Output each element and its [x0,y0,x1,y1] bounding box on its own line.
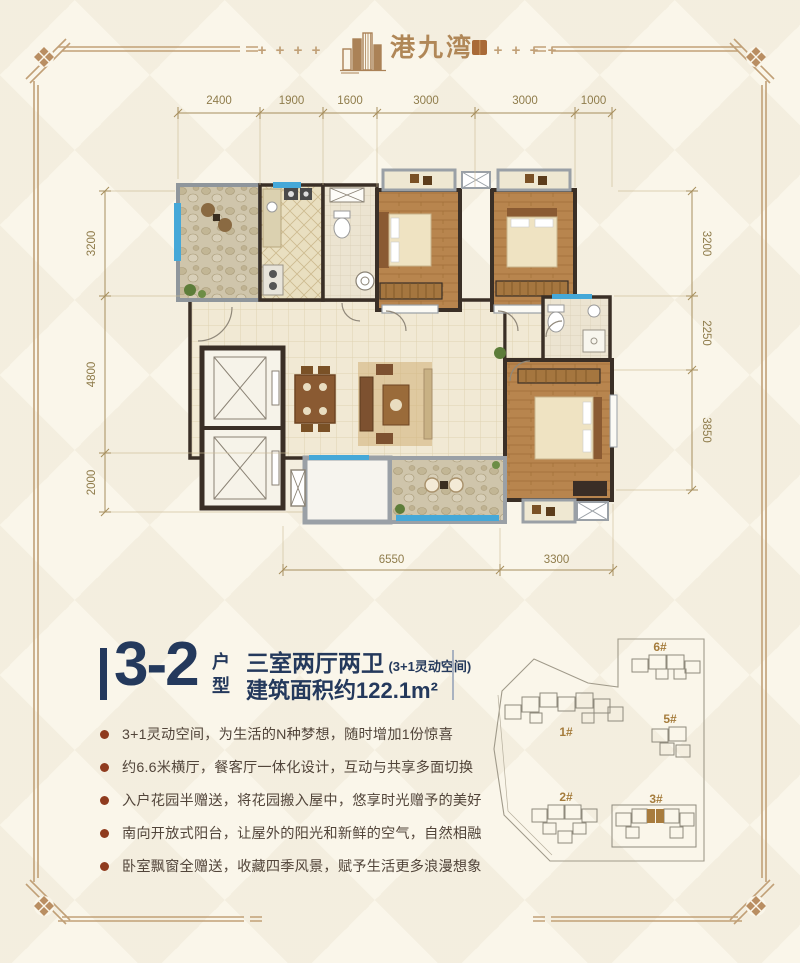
open-balcony [390,458,505,522]
site-building-6 [632,655,700,679]
site-building-2 [532,805,597,843]
sofa [360,377,373,431]
dim-top: 1000 [581,95,607,107]
bay-window [610,395,617,447]
list-item: 3+1灵动空间，为生活的N种梦想，随时增加1份惊喜 [100,724,472,744]
area-line: 建筑面积约122.1m² [246,673,438,705]
elevator-shafts [202,348,283,508]
bathroom-1 [323,185,377,300]
site-building-3 [612,805,696,847]
site-building-label: 3# [649,792,663,806]
dining-set [295,366,335,432]
feature-text: 3+1灵动空间，为生活的N种梦想，随时增加1份惊喜 [122,724,453,744]
feature-text: 卧室飘窗全赠送，收藏四季风景，赋予生活更多浪漫想象 [122,856,482,876]
list-item: 约6.6米横厅，餐客厅一体化设计，互动与共享多面切换 [100,757,472,777]
flex-room [291,455,390,522]
highlighted-unit [656,809,664,823]
bullet-icon [100,730,109,739]
bedroom-balconies [383,170,570,190]
site-building-5 [652,727,690,757]
suffix-bottom: 型 [212,674,230,698]
dim-top: 2400 [206,95,232,107]
bullet-icon [100,763,109,772]
layout-note: (3+1灵动空间) [388,659,471,674]
site-plan: 6# 1# 5# 2# [488,633,744,873]
tv-cabinet [424,369,432,439]
bullet-icon [100,796,109,805]
bullet-icon [100,862,109,871]
window [273,182,301,188]
wardrobe [380,283,442,299]
suffix-top: 户 [212,650,230,674]
site-building-label: 6# [653,640,667,654]
brand-logo: 港九湾 [0,0,800,80]
feature-text: 南向开放式阳台，让屋外的阳光和新鲜的空气，自然相融 [122,823,482,843]
site-building-label: 2# [559,790,573,804]
stove [263,265,283,295]
dim-bottom: 3300 [544,554,570,566]
wardrobe [518,369,600,383]
wardrobe [496,281,568,296]
shower [583,330,605,352]
site-building-1 [505,693,623,723]
dim-bottom: 6550 [379,554,405,566]
dim-top: 1600 [337,95,363,107]
kitchen [260,182,323,300]
brand-name: 港九湾 [390,36,474,61]
master-bedroom [505,360,617,500]
washing-machine [356,272,374,290]
vertical-divider [452,650,454,700]
dim-top: 3000 [512,95,538,107]
entry-garden [174,185,260,300]
logo-seal-icon [472,40,487,55]
feature-list: 3+1灵动空间，为生活的N种梦想，随时增加1份惊喜 约6.6米横厅，餐客厅一体化… [100,724,472,889]
dim-right: 3200 [700,231,712,257]
dim-right: 3850 [700,417,712,443]
window [552,294,592,299]
bedroom-1 [377,190,460,313]
dim-left: 2000 [86,470,98,496]
list-item: 南向开放式阳台，让屋外的阳光和新鲜的空气，自然相融 [100,823,472,843]
accent-bar [100,648,107,700]
master-balcony [523,500,608,522]
site-building-label: 5# [663,712,677,726]
unit-title-block: 3-2 户 型 三室两厅两卫 (3+1灵动空间) 建筑面积约122.1m² [100,642,445,708]
highlighted-unit [647,809,655,823]
bullet-icon [100,829,109,838]
desk [573,481,607,496]
frame-gap-mark [250,917,545,921]
feature-text: 约6.6米横厅，餐客厅一体化设计，互动与共享多面切换 [122,757,473,777]
dim-left: 3200 [86,231,98,257]
unit-code-suffix: 户 型 [212,650,230,699]
floor-plan: 2400 1900 1600 3000 3000 1000 3200 4800 … [80,85,720,600]
list-item: 卧室飘窗全赠送，收藏四季风景，赋予生活更多浪漫想象 [100,856,472,876]
list-item: 入户花园半赠送，将花园搬入屋中，悠享时光赠予的美好 [100,790,472,810]
sink [588,305,600,317]
site-building-label: 1# [559,725,573,739]
dim-top: 3000 [413,95,439,107]
site-boundary [494,639,704,861]
bathroom-2 [543,294,610,360]
dim-top: 1900 [279,95,305,107]
window [174,203,181,261]
dim-right: 2250 [700,320,712,346]
dim-left: 4800 [86,362,98,388]
kitchen-counter [263,189,281,247]
buildings-logo-icon [340,30,386,74]
toilet [334,218,350,238]
unit-code: 3-2 [114,634,198,696]
feature-text: 入户花园半赠送，将花园搬入屋中，悠享时光赠予的美好 [122,790,482,810]
floorplan-poster: + + + + + + + + 港九湾 [0,0,800,963]
